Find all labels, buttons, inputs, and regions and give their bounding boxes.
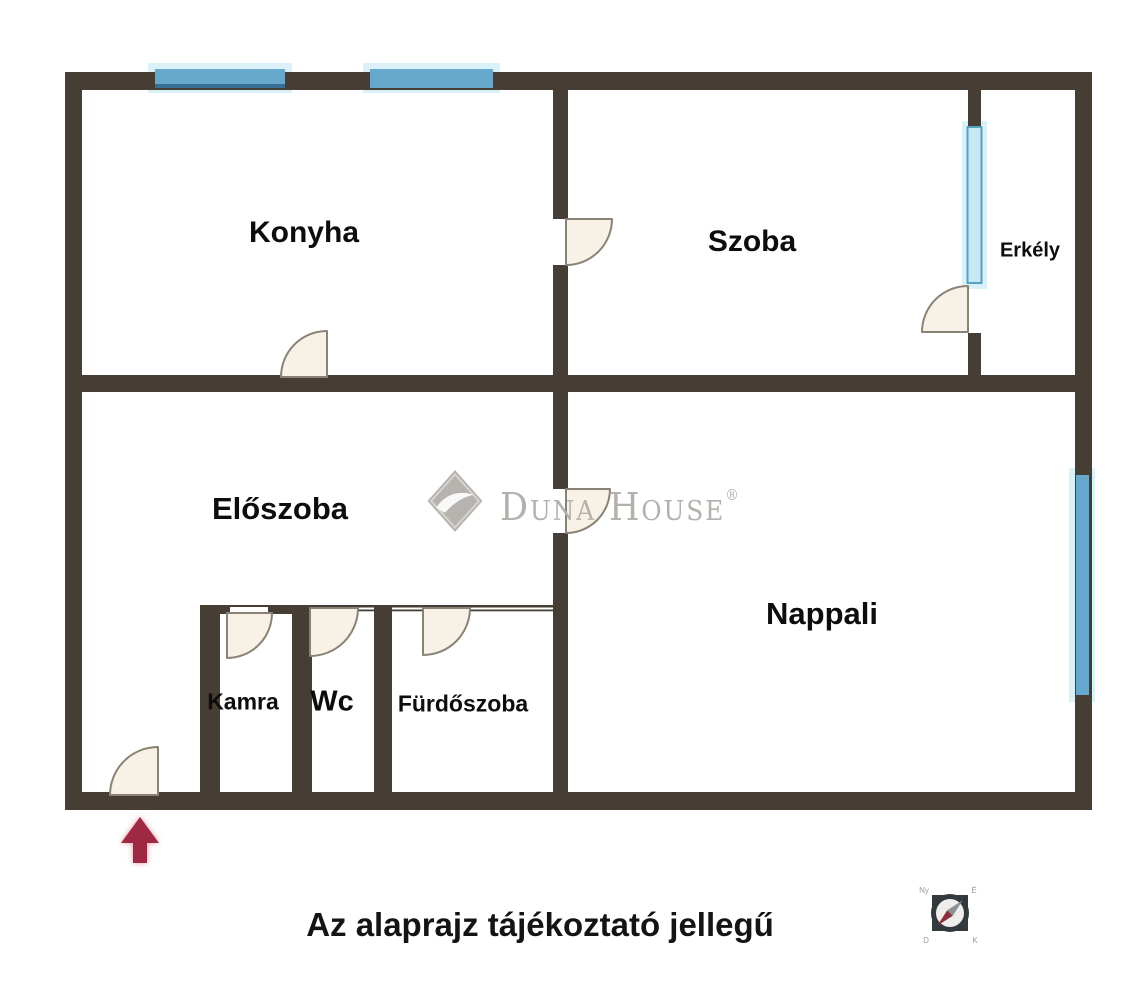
wall-mid-horizontal	[65, 375, 1092, 392]
wall-balcony-lower	[968, 333, 981, 375]
door-eloszoba-nappali	[566, 489, 610, 533]
room-label-wc: Wc	[310, 686, 354, 719]
wall-thin-top-inner-2	[470, 610, 553, 612]
compass-mark-nw: Ny	[919, 886, 929, 895]
window-konyha-2	[370, 69, 493, 88]
door-konyha-szoba	[566, 219, 612, 265]
door-furdoszoba	[423, 608, 470, 655]
entrance-arrow-icon	[121, 817, 159, 863]
compass-mark-ne: É	[971, 886, 976, 895]
wall-thin-top-inner-1	[358, 610, 423, 612]
window-nappali	[1076, 475, 1089, 695]
room-label-konyha: Konyha	[249, 216, 359, 250]
door-wc	[310, 608, 358, 656]
wall-balcony-upper	[968, 90, 981, 127]
room-label-nappali: Nappali	[766, 596, 878, 632]
room-label-eloszoba: Előszoba	[212, 491, 348, 527]
wall-kamra-door-head	[230, 605, 270, 607]
disclaimer-text: Az alaprajz tájékoztató jellegű	[306, 906, 774, 944]
entrance-door	[110, 747, 158, 795]
wall-wc-right	[374, 605, 392, 792]
room-label-furdoszoba: Fürdőszoba	[398, 691, 528, 718]
wall-central-lower	[553, 533, 568, 792]
wall-kamra-top-left	[200, 605, 230, 614]
wall-central-upper	[553, 90, 568, 219]
floorplan-drawing: É K D Ny	[0, 0, 1130, 1000]
door-szoba-erkely	[922, 286, 968, 332]
compass-mark-sw: D	[923, 936, 929, 945]
door-konyha-eloszoba	[281, 331, 327, 377]
wall-kamra-top-right	[268, 605, 312, 614]
door-kamra	[227, 613, 272, 658]
compass-mark-se: K	[972, 936, 978, 945]
wall-outer-bottom	[65, 792, 1092, 810]
room-label-erkely: Erkély	[1000, 240, 1060, 263]
room-label-kamra: Kamra	[207, 689, 279, 716]
room-label-szoba: Szoba	[708, 225, 796, 259]
compass-icon: É K D Ny	[919, 886, 978, 945]
floorplan-page: É K D Ny Duna House® Konyha Szoba Erkély…	[0, 0, 1130, 1000]
window-erkely	[968, 127, 982, 283]
wall-central-middle	[553, 265, 568, 489]
window-konyha-1-sill	[155, 84, 285, 88]
wall-outer-right	[1075, 72, 1092, 810]
wall-outer-left	[65, 72, 82, 810]
